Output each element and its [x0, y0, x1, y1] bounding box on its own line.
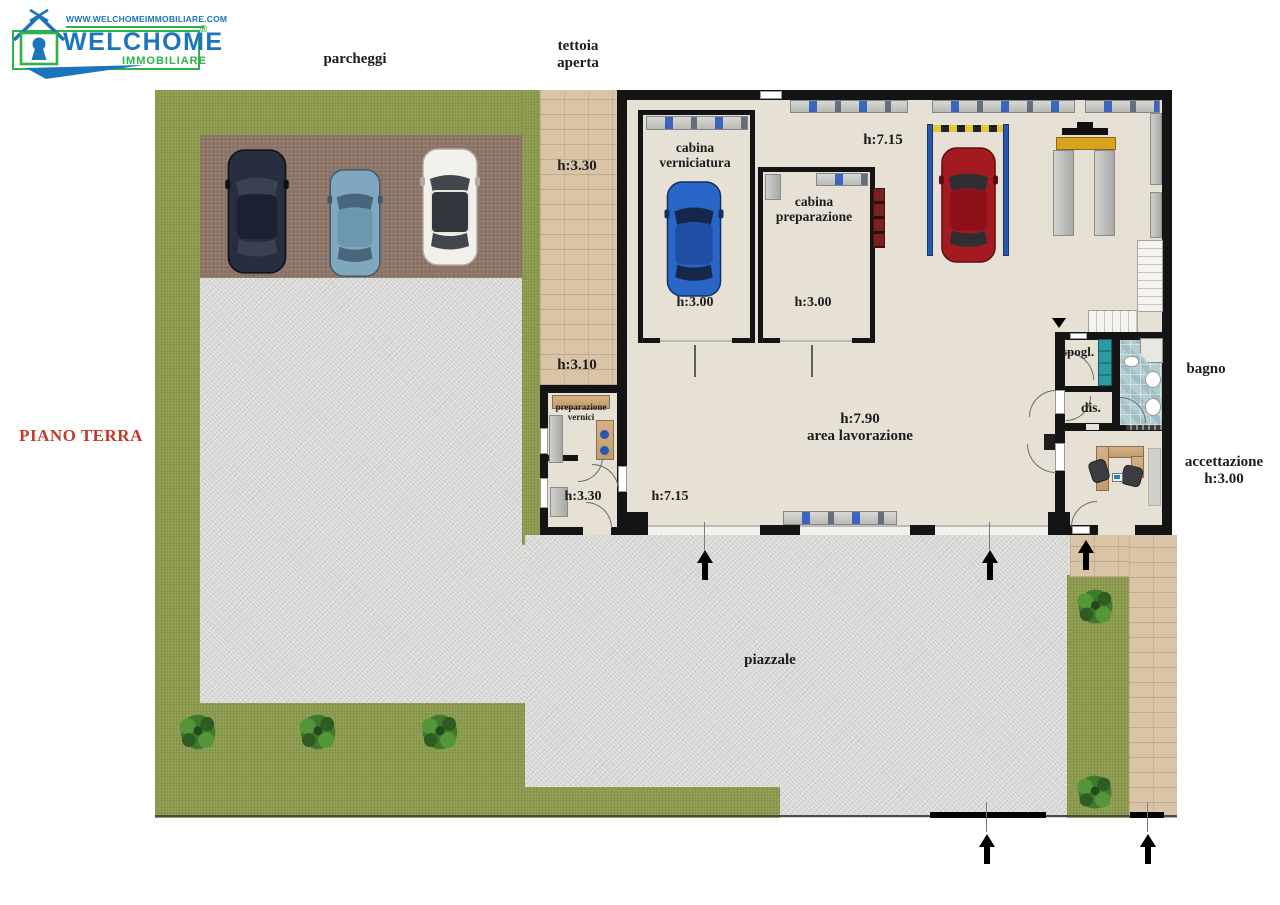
cabina-verniciatura-height: h:3.00	[663, 295, 727, 311]
pillar-south-1	[760, 525, 800, 535]
cabina-preparazione-label: cabina preparazione	[758, 194, 870, 224]
spogl-dis-divider	[1065, 386, 1112, 392]
tettoia-label: tettoia aperta	[543, 38, 613, 72]
entrance-arrow-1	[697, 550, 713, 580]
tettoia-label-line1: tettoia	[543, 38, 613, 55]
twopost-lift-ramp-left	[1053, 150, 1074, 236]
paint-prep-stool	[600, 430, 609, 439]
bagno-west-wall	[1112, 332, 1120, 431]
stair-direction-marker	[1052, 318, 1066, 328]
tettoia-paving	[540, 90, 622, 385]
cabina-verniciatura-line1: cabina	[640, 140, 750, 155]
rooms-north-opening	[1070, 333, 1087, 339]
west-wall-door-leaf	[1055, 443, 1065, 471]
logo-swoosh	[26, 65, 144, 80]
cabina-verniciatura-door-track	[660, 340, 732, 342]
floorplan-page: { "logo": { "website": "WWW.WELCHOMEIMMO…	[0, 0, 1280, 905]
cabina-preparazione-door-track	[780, 340, 852, 342]
twopost-lift-ramp-right	[1094, 150, 1115, 236]
cabina-preparazione-door-mark	[811, 345, 813, 377]
grass-top-band	[155, 90, 530, 135]
twopost-lift-arm	[1062, 128, 1108, 135]
paint-prep-cabinet	[549, 415, 563, 463]
preparazione-vernici-line1: preparazione	[550, 402, 612, 412]
annex-west-wall	[540, 385, 548, 535]
south-wall-bench	[783, 511, 897, 525]
staircase-lower-flight	[1088, 310, 1138, 334]
wall-north	[617, 90, 1172, 100]
logo-brand: WELCHOME	[63, 28, 205, 57]
cabina-verniciatura-line2: verniciatura	[640, 155, 750, 170]
entrance-leader-2	[989, 522, 990, 550]
workbench-row	[932, 100, 1075, 113]
gate-arrow-2	[1140, 834, 1156, 864]
right-path-paving	[1129, 535, 1177, 818]
annex-south-door-opening	[583, 527, 611, 535]
workbench-row	[790, 100, 908, 113]
parcheggi-label: parcheggi	[295, 51, 415, 68]
cabina-preparazione-bench	[816, 173, 868, 186]
logo-website: WWW.WELCHOMEIMMOBILIARE.COM	[66, 14, 206, 24]
spogliatoio-label: spogl.	[1062, 345, 1104, 360]
disimpegno-label: dis.	[1070, 400, 1112, 415]
cabina-preparazione-line2: preparazione	[758, 209, 870, 224]
lift-hazard-beam	[933, 125, 1003, 132]
gate-arrow-1	[979, 834, 995, 864]
tettoia-height-bottom: h:3.10	[545, 357, 609, 374]
workbench-row	[1085, 100, 1160, 113]
site-gate-segment-1	[930, 812, 1046, 818]
bagno-label: bagno	[1178, 361, 1234, 378]
accettazione-height: h:3.00	[1172, 471, 1276, 488]
cabina-preparazione-line1: cabina	[758, 194, 870, 209]
car-on-lift-red	[938, 146, 999, 264]
reception-mat	[1148, 448, 1161, 506]
sink-2	[1145, 398, 1161, 416]
piazzale-label: piazzale	[710, 652, 830, 669]
bush	[175, 709, 221, 755]
entrance-arrow-2	[982, 550, 998, 580]
bush	[1073, 770, 1117, 814]
bush	[417, 709, 463, 755]
lift-rail-left	[927, 124, 933, 256]
pillar-south-2	[910, 525, 935, 535]
concrete-left-area	[197, 278, 530, 708]
gate-leader-1	[986, 802, 987, 832]
staircase-upper-flight	[1137, 240, 1163, 312]
area-lavorazione-label: h:7.90 area lavorazione	[790, 411, 930, 445]
laptop-screen	[1114, 475, 1120, 479]
annex-west-window-1	[540, 428, 548, 454]
tettoia-label-line2: aperta	[543, 55, 613, 72]
workshop-height-bottom: h:7.15	[638, 489, 702, 505]
parked-car-white	[420, 143, 480, 271]
logo-house-icon	[10, 8, 68, 68]
entrance-leader-1	[704, 522, 705, 550]
spogl-door-leaf	[1055, 390, 1065, 414]
annex-height: h:3.30	[552, 489, 614, 505]
welchome-logo: WWW.WELCHOMEIMMOBILIARE.COM WELCHOME ® I…	[10, 6, 215, 82]
cabina-preparazione-height: h:3.00	[781, 295, 845, 311]
toilet	[1124, 356, 1139, 367]
east-wall-shelf	[1150, 113, 1162, 185]
annex-west-window-2	[540, 478, 548, 508]
annex-east-door-leaf	[618, 466, 627, 492]
preparazione-vernici-label: preparazione vernici	[550, 402, 612, 422]
tettoia-height-top: h:3.30	[545, 158, 609, 175]
cabina-verniciatura-label: cabina verniciatura	[640, 140, 750, 170]
cabina-verniciatura-bench	[646, 116, 748, 130]
logo-registered: ®	[200, 24, 207, 35]
area-lavorazione-name: area lavorazione	[790, 428, 930, 445]
grass-mid-strip	[522, 90, 542, 545]
car-in-spray-booth	[664, 180, 724, 298]
gate-leader-2	[1147, 802, 1148, 832]
garage-door-track-2	[800, 525, 910, 535]
accettazione-south-door-opening	[1098, 525, 1135, 535]
accettazione-label: accettazione h:3.00	[1172, 454, 1276, 488]
annex-north-wall	[540, 385, 622, 393]
north-wall-opening	[760, 91, 782, 99]
workshop-height-top: h:7.15	[853, 132, 913, 149]
paint-rack	[873, 188, 885, 248]
accettazione-name: accettazione	[1172, 454, 1276, 471]
twopost-lift-beam	[1056, 137, 1116, 150]
area-lavorazione-height: h:7.90	[790, 411, 930, 428]
accettazione-door-opening	[1086, 424, 1099, 430]
east-wall-shelf	[1150, 192, 1162, 238]
bush	[295, 709, 341, 755]
preparazione-vernici-line2: vernici	[550, 412, 612, 422]
lift-rail-right	[1003, 124, 1009, 256]
wall-east	[1162, 90, 1172, 535]
parked-car-blue	[325, 168, 385, 278]
floor-title: PIANO TERRA	[16, 426, 146, 445]
garage-door-track-3	[935, 525, 1048, 535]
paint-prep-stool	[600, 446, 609, 455]
bush	[1073, 584, 1118, 629]
sink-1	[1145, 371, 1161, 388]
entrance-arrow-3	[1078, 540, 1094, 570]
grass-bottom-band	[155, 787, 780, 818]
cabina-verniciatura-door-mark	[694, 345, 696, 377]
accettazione-south-window	[1072, 526, 1090, 534]
parked-car-dark	[224, 148, 290, 275]
